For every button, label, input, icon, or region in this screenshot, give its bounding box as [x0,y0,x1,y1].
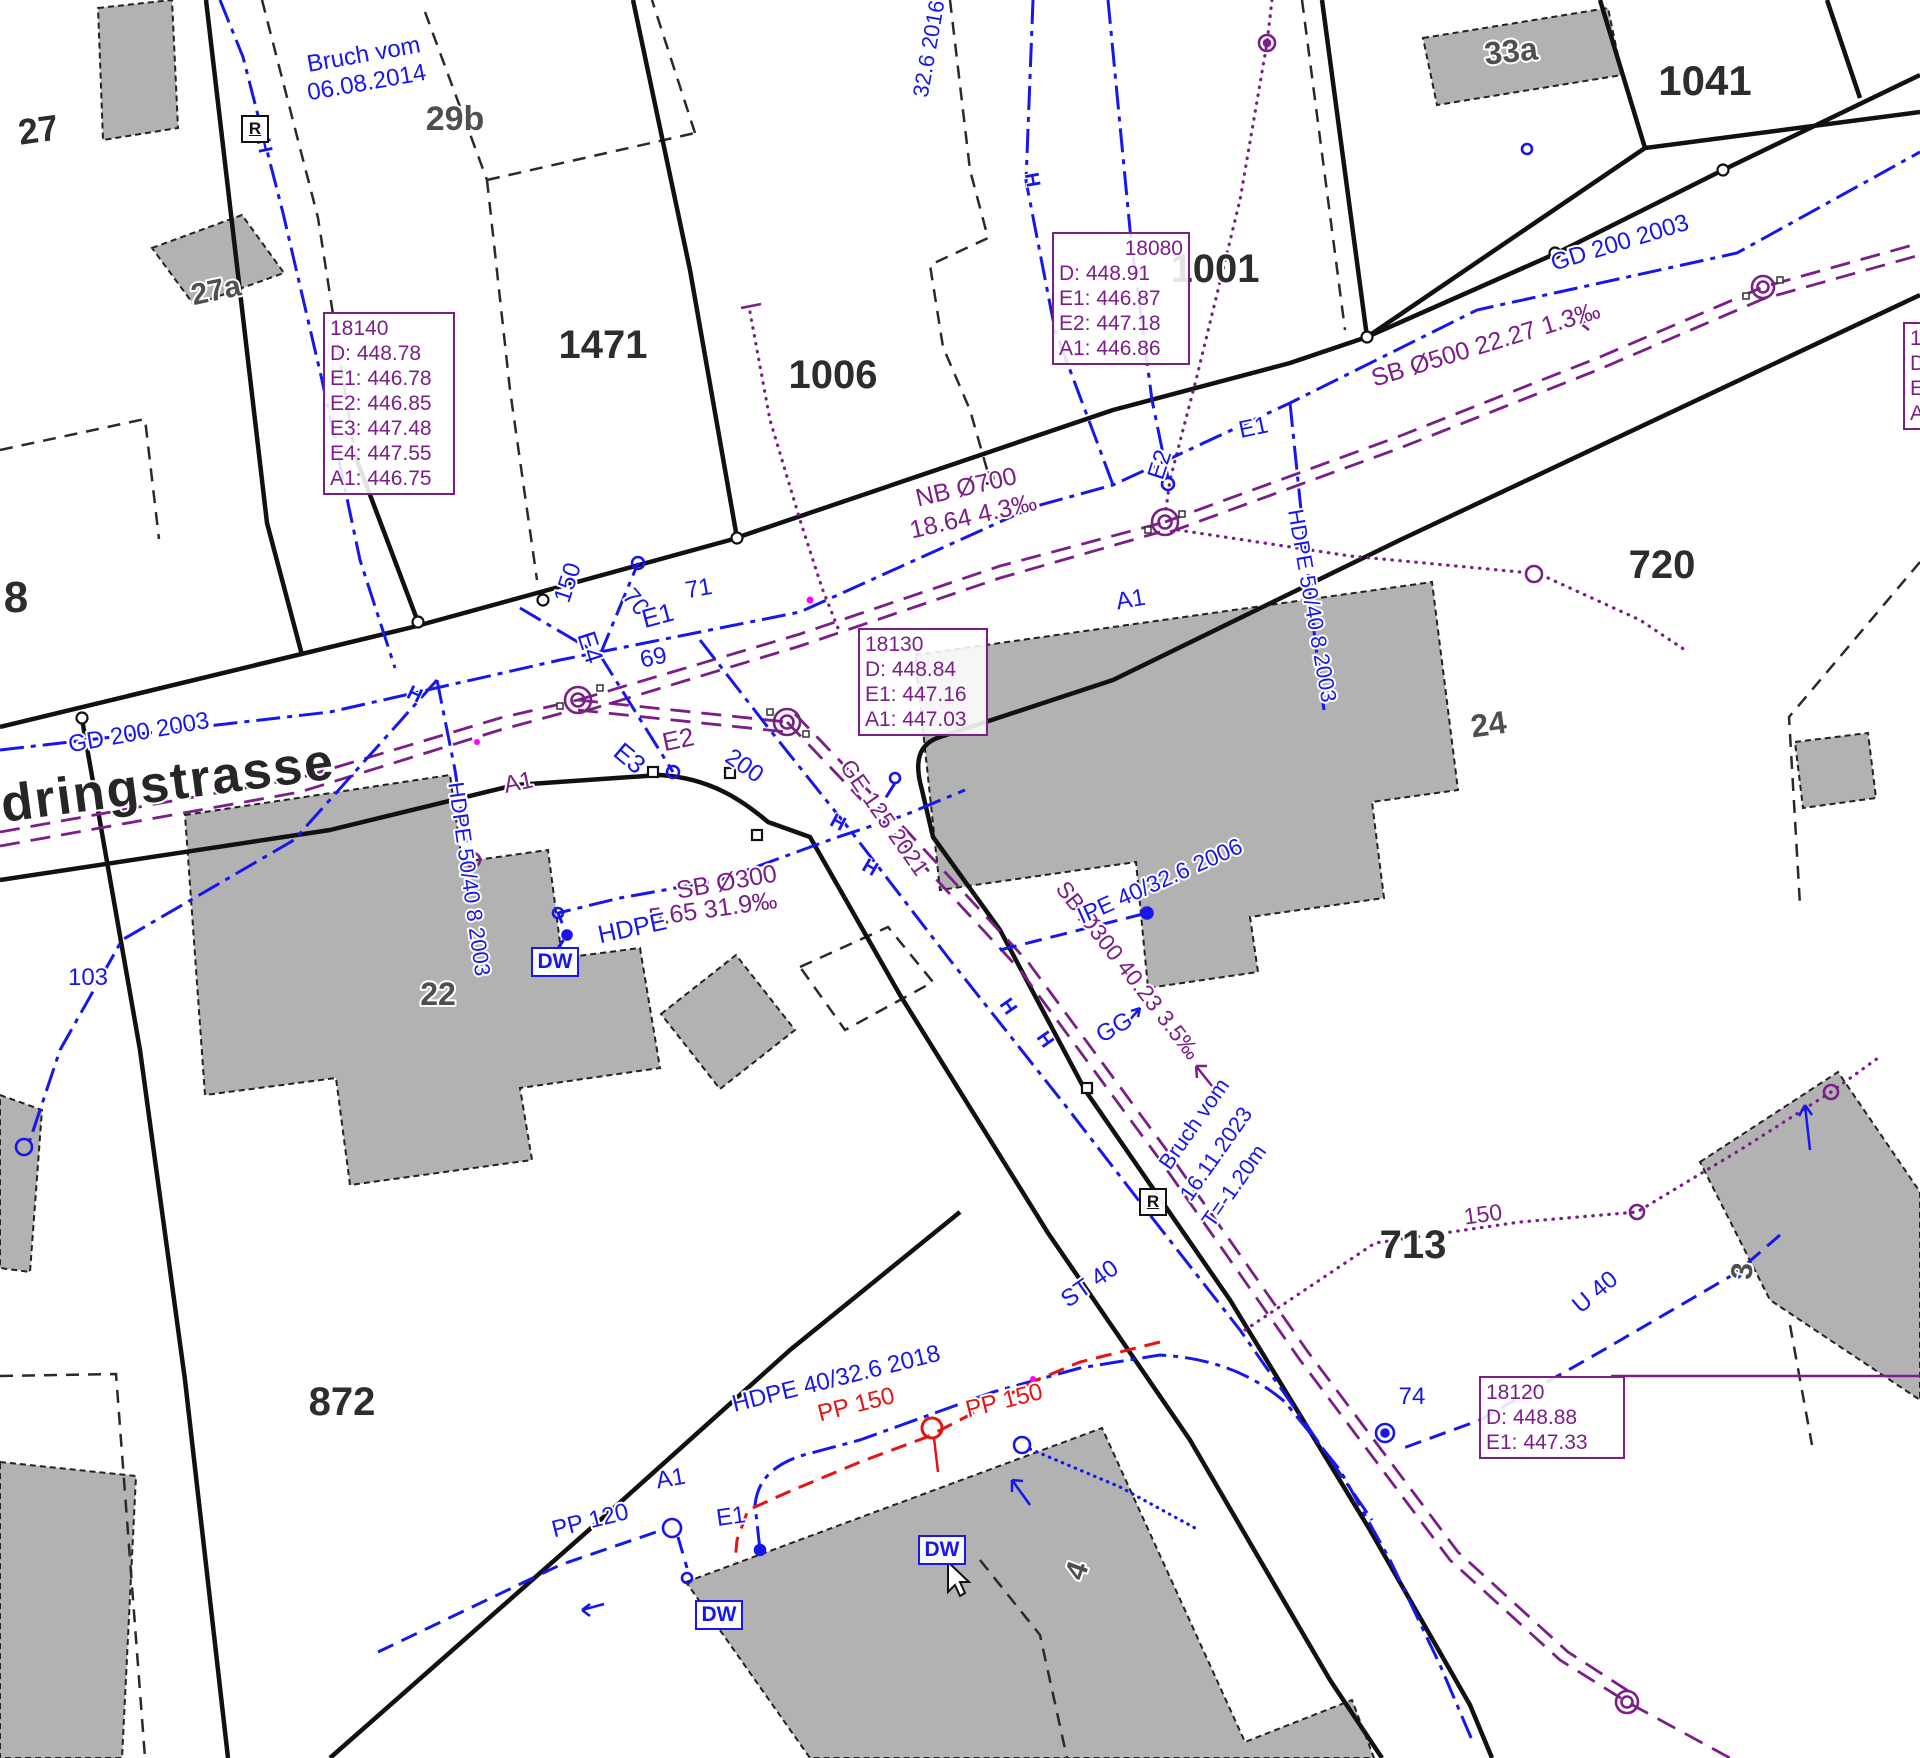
map-label: 200 [720,743,768,788]
building-left-bottom [0,1462,136,1758]
map-label: U 40 [1567,1266,1623,1319]
building-3 [1700,1072,1920,1400]
info-box-edge-partial: 1DEA [1903,322,1920,430]
map-label: A1 [1114,584,1148,616]
map-label: 29b [426,100,485,138]
map-label: 1006 [789,353,878,397]
map-label: 32.6 2016 [908,0,950,99]
info-box-line: E [1910,376,1920,401]
map-label: 24 [1468,704,1508,745]
map-label: 720 [1629,543,1696,587]
map-label: 150 [1462,1199,1504,1230]
building-24-annex [1795,733,1876,808]
pp-node [663,1519,681,1537]
arrow-left-icon [582,1604,604,1616]
house-dot [563,931,572,940]
info-box-18120: 18120D: 448.88E1: 447.33 [1479,1376,1625,1459]
info-box-line: E1: 447.16 [865,682,981,707]
map-label: E3 [608,736,652,779]
map-label: ST 40 [1056,1255,1124,1314]
red-hydrant-icon [922,1418,942,1438]
map-label: E2 [659,721,696,757]
map-labels: Bruch vom06.08.20142727a29b1471100610413… [0,0,1760,1584]
map-label: 103 [68,964,108,991]
info-box-line: 1 [1910,326,1920,351]
info-box-line: E1: 447.33 [1486,1430,1618,1455]
info-box-line: D [1910,351,1920,376]
map-label: 713 [1380,1223,1447,1267]
map-label: 1041 [1658,57,1751,104]
pp-node [1014,1437,1030,1453]
map-label: PP 120 [549,1498,632,1543]
manhole-icon [1752,276,1774,298]
valve-icon: H [403,682,425,708]
map-label: 33a [1482,30,1539,71]
map-label: 1471 [559,323,648,367]
cadastral-map-svg: HHHHHHH Bruch vom06.08.20142727a29b14711… [0,0,1920,1758]
map-label: E1 [715,1501,748,1532]
info-box-line: A1: 446.86 [1059,336,1183,361]
double-circle-74 [1376,1424,1394,1442]
valve-icon: H [858,855,882,881]
map-label: 74 [1399,1383,1426,1410]
map-label: 3 [1725,1261,1759,1281]
info-box-line: E1: 446.78 [330,366,448,391]
info-box-line: A1: 446.75 [330,466,448,491]
dw-marker-icon: DW [531,947,579,977]
info-box-line: E1: 446.87 [1059,286,1183,311]
dw-marker-icon: DW [918,1535,966,1565]
valve-icon: H [826,810,849,836]
info-box-line: D: 448.78 [330,341,448,366]
dw-marker-icon: DW [695,1600,743,1630]
map-label: 27 [16,107,61,153]
small-circle [1522,144,1532,154]
map-label: 22 [420,976,456,1012]
map-label: A1 [654,1463,688,1495]
map-canvas[interactable]: HHHHHHH Bruch vom06.08.20142727a29b14711… [0,0,1920,1758]
small-circle [890,773,900,783]
info-box-line: E2: 447.18 [1059,311,1183,336]
building-topleft [98,0,178,140]
info-box-line: E3: 447.48 [330,416,448,441]
buildings [0,0,1920,1758]
info-box-line: 18080 [1059,236,1183,261]
info-box-line: 18140 [330,316,448,341]
info-box-line: 18120 [1486,1380,1618,1405]
map-label: 872 [309,1380,376,1424]
building-center-small [661,955,795,1089]
info-box-line: D: 448.84 [865,657,981,682]
sewer-tick [741,304,761,308]
map-label: A1 [501,766,535,799]
house-dot [755,1545,765,1555]
info-box-line: E4: 447.55 [330,441,448,466]
house-dot [1142,908,1153,919]
manhole-icon [1616,1691,1638,1713]
info-box-line: D: 448.88 [1486,1405,1618,1430]
info-box-line: E2: 446.85 [330,391,448,416]
map-label: 71 [683,573,714,604]
info-box-line: A1: 447.03 [865,707,981,732]
valve-icon: H [995,994,1021,1018]
r-marker-icon: R [1139,1188,1167,1216]
pipe-node [1526,566,1542,582]
map-label: 69 [638,642,670,674]
map-label: GG [1091,1006,1137,1048]
info-box-line: A [1910,401,1920,426]
map-label: HDPE [595,907,669,949]
valve-icon: H [1020,171,1044,189]
info-box-18140: 18140D: 448.78E1: 446.78E2: 446.85E3: 44… [323,312,455,495]
info-box-18130: 18130D: 448.84E1: 447.16A1: 447.03 [858,628,988,736]
info-box-line: 18130 [865,632,981,657]
map-label: 150 [549,559,587,605]
map-label: PP 150 [963,1378,1046,1423]
map-label: 8 [4,573,28,622]
building-4 [686,1428,1374,1758]
r-marker-icon: R [241,115,269,143]
info-box-line: D: 448.91 [1059,261,1183,286]
map-label: E1 [1236,411,1270,444]
info-box-18080: 18080D: 448.91E1: 446.87E2: 447.18A1: 44… [1052,232,1190,365]
